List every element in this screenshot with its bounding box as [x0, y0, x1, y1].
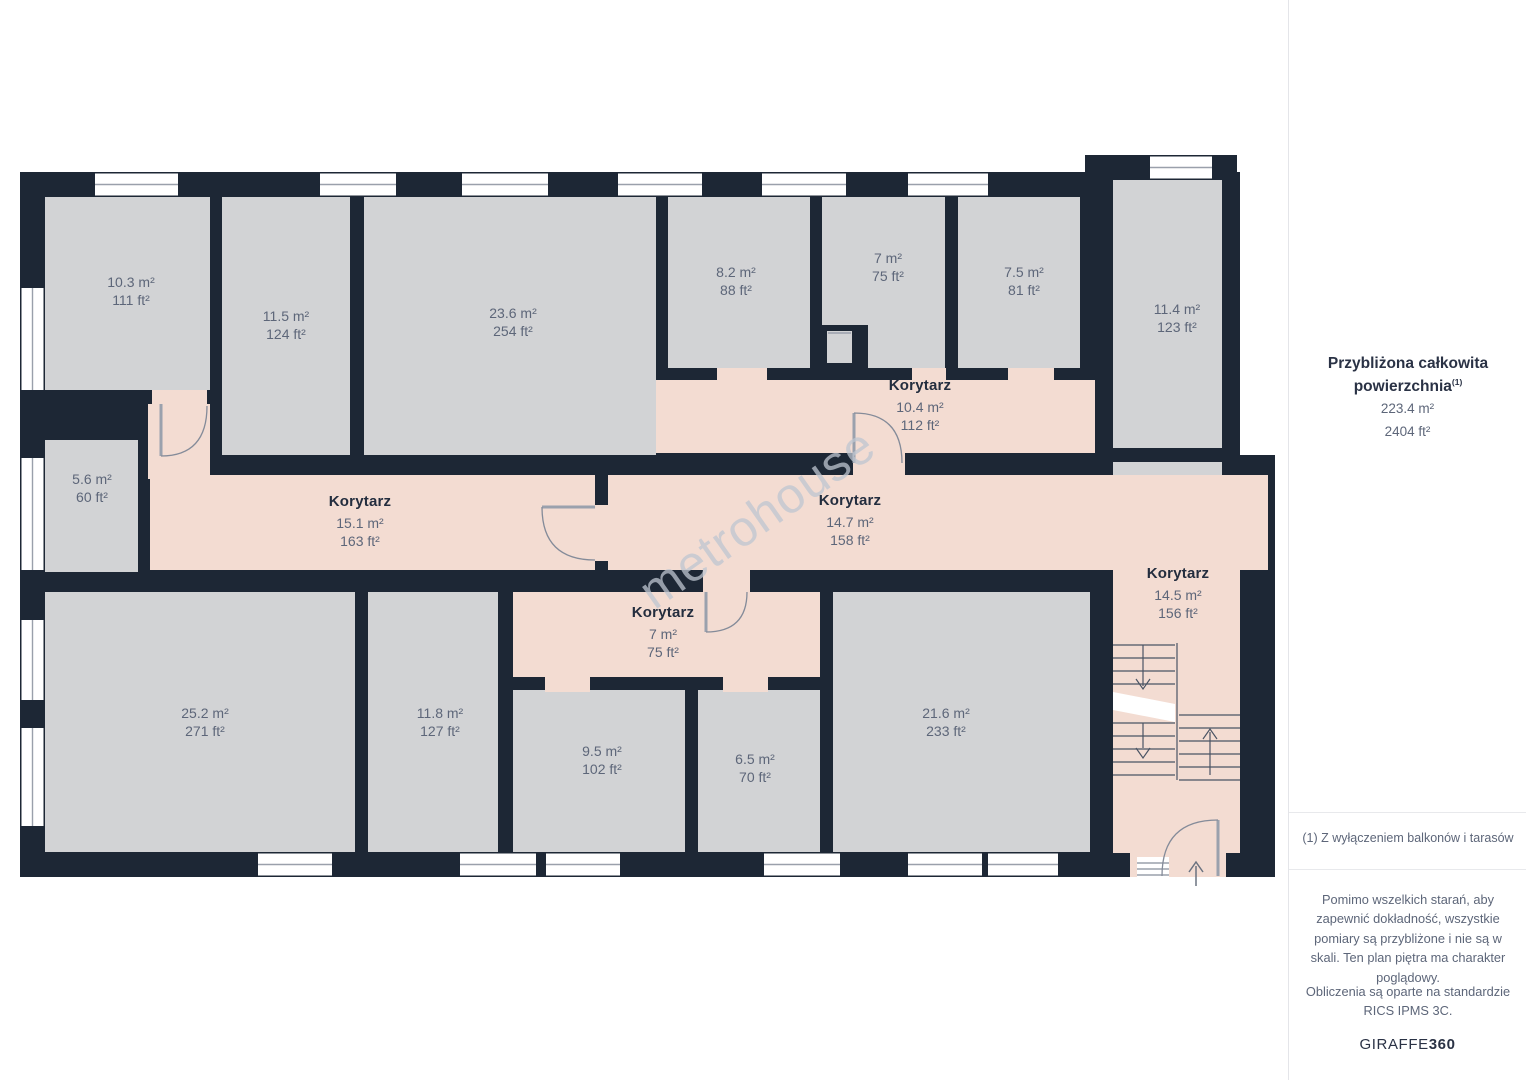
- room-area-ft2: 163 ft²: [329, 532, 391, 550]
- total-area-title: Przybliżona całkowita powierzchnia(1): [1303, 352, 1513, 399]
- room-area-ft2: 156 ft²: [1147, 604, 1209, 622]
- room-label: 25.2 m² 271 ft²: [181, 704, 228, 740]
- room-area-ft2: 124 ft²: [263, 325, 309, 343]
- room-area-m2: 7 m²: [872, 249, 904, 267]
- room-area-m2: 25.2 m²: [181, 704, 228, 722]
- corridor-label: Korytarz 7 m² 75 ft²: [632, 603, 694, 661]
- info-sidebar: Przybliżona całkowita powierzchnia(1) 22…: [1288, 0, 1526, 1080]
- room-area-m2: 11.5 m²: [263, 307, 309, 325]
- room-label: 10.3 m² 111 ft²: [107, 273, 154, 309]
- room-area-ft2: 254 ft²: [489, 322, 536, 340]
- room-area-ft2: 75 ft²: [872, 267, 904, 285]
- room-name: Korytarz: [819, 491, 881, 511]
- footnote-marker: (1): [1452, 377, 1462, 387]
- room-area-ft2: 88 ft²: [716, 281, 756, 299]
- room-label: 11.8 m² 127 ft²: [417, 704, 463, 740]
- room-area-m2: 11.4 m²: [1154, 300, 1200, 318]
- room-area-m2: 10.4 m²: [889, 398, 951, 416]
- room-area-m2: 21.6 m²: [922, 704, 969, 722]
- room-label: 6.5 m² 70 ft²: [735, 750, 775, 786]
- room-area-m2: 10.3 m²: [107, 273, 154, 291]
- room-area-ft2: 81 ft²: [1004, 281, 1044, 299]
- divider: [1289, 869, 1526, 870]
- room-label: 21.6 m² 233 ft²: [922, 704, 969, 740]
- entrance-steps: [1137, 857, 1169, 877]
- room-area-ft2: 112 ft²: [889, 416, 951, 434]
- room-area-m2: 6.5 m²: [735, 750, 775, 768]
- room-area-m2: 7.5 m²: [1004, 263, 1044, 281]
- room-area-ft2: 111 ft²: [107, 291, 154, 309]
- room-name: Korytarz: [1147, 564, 1209, 584]
- room-label: 9.5 m² 102 ft²: [582, 742, 622, 778]
- room-area-ft2: 60 ft²: [72, 488, 112, 506]
- corridor-label: Korytarz 14.5 m² 156 ft²: [1147, 564, 1209, 622]
- room-area-m2: 14.5 m²: [1147, 586, 1209, 604]
- floorplan-page: metrohouse 10.3 m² 111 ft² 11.5 m² 124 f…: [0, 0, 1526, 1080]
- giraffe360-logo: GIRAFFE360: [1289, 1036, 1526, 1053]
- room-area-ft2: 75 ft²: [632, 643, 694, 661]
- room-area-m2: 15.1 m²: [329, 514, 391, 532]
- standard-text: Obliczenia są oparte na standardzie RICS…: [1302, 982, 1514, 1021]
- room-label: 23.6 m² 254 ft²: [489, 304, 536, 340]
- room-area-m2: 7 m²: [632, 625, 694, 643]
- corridor-label: Korytarz 10.4 m² 112 ft²: [889, 376, 951, 434]
- logo-text-secondary: 360: [1429, 1036, 1456, 1053]
- corridor-label: Korytarz 15.1 m² 163 ft²: [329, 492, 391, 550]
- total-area-title-text: Przybliżona całkowita powierzchnia: [1328, 355, 1488, 395]
- room-label: 8.2 m² 88 ft²: [716, 263, 756, 299]
- room-area-m2: 5.6 m²: [72, 470, 112, 488]
- corridor-label: Korytarz 14.7 m² 158 ft²: [819, 491, 881, 549]
- room-name: Korytarz: [632, 603, 694, 623]
- disclaimer-text: Pomimo wszelkich starań, aby zapewnić do…: [1302, 890, 1514, 987]
- room-area-m2: 14.7 m²: [819, 513, 881, 531]
- room-label: 5.6 m² 60 ft²: [72, 470, 112, 506]
- room-area-ft2: 158 ft²: [819, 531, 881, 549]
- room-label: 7.5 m² 81 ft²: [1004, 263, 1044, 299]
- room-area-m2: 11.8 m²: [417, 704, 463, 722]
- room-area-ft2: 127 ft²: [417, 722, 463, 740]
- room-label: 11.4 m² 123 ft²: [1154, 300, 1200, 336]
- room-name: Korytarz: [329, 492, 391, 512]
- room-label: 11.5 m² 124 ft²: [263, 307, 309, 343]
- total-area-m2: 223.4 m²: [1289, 401, 1526, 416]
- room-name: Korytarz: [889, 376, 951, 396]
- divider: [1289, 812, 1526, 813]
- total-area-ft2: 2404 ft²: [1289, 424, 1526, 439]
- room-label: 7 m² 75 ft²: [872, 249, 904, 285]
- room-area-ft2: 271 ft²: [181, 722, 228, 740]
- room-area-ft2: 123 ft²: [1154, 318, 1200, 336]
- room-area-ft2: 102 ft²: [582, 760, 622, 778]
- room-area-m2: 8.2 m²: [716, 263, 756, 281]
- logo-text-primary: GIRAFFE: [1359, 1036, 1428, 1053]
- room-area-ft2: 70 ft²: [735, 768, 775, 786]
- room-area-m2: 23.6 m²: [489, 304, 536, 322]
- footnote-text: (1) Z wyłączeniem balkonów i tarasów: [1297, 831, 1519, 845]
- room-area-ft2: 233 ft²: [922, 722, 969, 740]
- room-area-m2: 9.5 m²: [582, 742, 622, 760]
